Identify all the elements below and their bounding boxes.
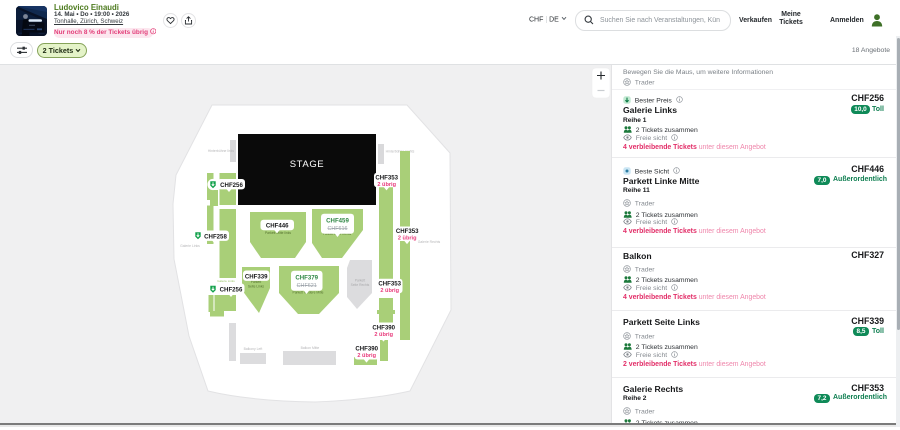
svg-text:Parkett: Parkett [355,279,366,283]
svg-text:CHF256: CHF256 [220,287,243,294]
svg-text:CHF353: CHF353 [375,174,398,181]
svg-text:2 übrig: 2 übrig [357,353,376,359]
svg-text:Seite Links: Seite Links [248,285,264,289]
svg-text:Balkon Mitte: Balkon Mitte [301,346,320,350]
svg-text:2 übrig: 2 übrig [380,288,399,294]
svg-text:STAGE: STAGE [290,159,325,170]
svg-text:2 übrig: 2 übrig [398,236,417,242]
svg-text:CHF339: CHF339 [245,273,268,280]
svg-text:CHF390: CHF390 [372,324,395,331]
svg-text:CHF390: CHF390 [355,345,378,352]
svg-text:Galerie Links: Galerie Links [180,244,200,248]
svg-text:Hinterbühne links: Hinterbühne links [208,149,235,153]
svg-text:CHF258: CHF258 [204,234,227,241]
svg-text:CHF616: CHF616 [327,226,347,232]
svg-text:Balkony Left: Balkony Left [244,347,263,351]
svg-text:CHF379: CHF379 [295,275,318,282]
svg-text:Seite Rechts: Seite Rechts [351,283,370,287]
svg-text:CHF446: CHF446 [266,223,289,230]
svg-text:Galerie Links: Galerie Links [217,279,235,283]
svg-text:CHF621: CHF621 [297,283,317,289]
svg-text:CHF256: CHF256 [220,182,243,189]
svg-text:CHF459: CHF459 [326,218,349,225]
svg-text:Galerie Rechts: Galerie Rechts [418,240,441,244]
svg-text:2 übrig: 2 übrig [377,182,396,188]
svg-text:CHF353: CHF353 [378,280,401,287]
svg-text:CHF353: CHF353 [396,228,419,235]
svg-text:2 übrig: 2 übrig [374,332,393,338]
